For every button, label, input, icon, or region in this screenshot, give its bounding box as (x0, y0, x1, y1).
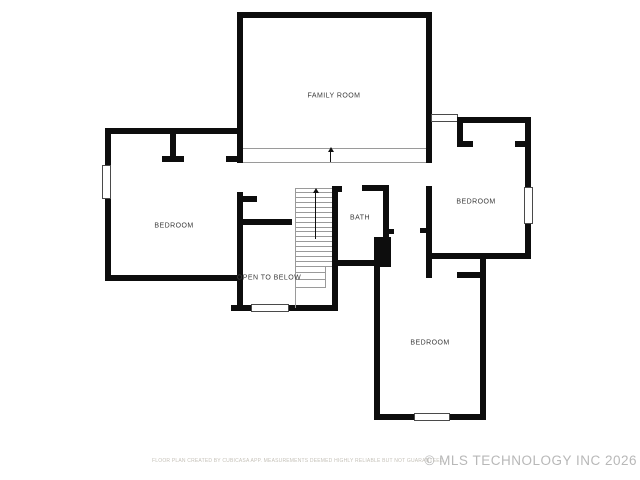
interior-wall (426, 253, 531, 259)
exterior-wall (105, 275, 237, 281)
wall-stub (332, 186, 342, 192)
interior-wall (332, 186, 338, 311)
room-label-open-to-below: OPEN TO BELOW (237, 275, 301, 282)
room-label-family-room: FAMILY ROOM (308, 93, 361, 100)
window (102, 165, 111, 199)
railing-window (251, 304, 289, 312)
floor-plan: FAMILY ROOM BEDROOM BATH BEDROOM OPEN TO… (0, 0, 640, 480)
closet-wall (170, 134, 176, 158)
room-label-bedroom-right: BEDROOM (456, 199, 495, 206)
step-line (243, 148, 426, 149)
room-label-bath: BATH (350, 215, 370, 222)
stair-tread (296, 241, 332, 242)
watermark: © MLS TECHNOLOGY INC 2026 (424, 453, 637, 468)
window (524, 187, 533, 224)
stair-tread (296, 256, 332, 257)
room-label-bedroom-left: BEDROOM (154, 223, 193, 230)
exterior-wall (237, 12, 432, 18)
closet-wall (162, 156, 184, 162)
stair-tread (296, 207, 332, 208)
wall-stub (237, 196, 257, 202)
stair-tread (296, 227, 332, 228)
wall-stub (389, 229, 394, 234)
exterior-wall (457, 117, 531, 123)
stair-tread (296, 236, 332, 237)
stair-edge (295, 188, 296, 308)
step-up-arrow-icon (330, 152, 331, 162)
stair-tread (296, 212, 332, 213)
closet-wall (457, 141, 473, 147)
footer-disclaimer: FLOOR PLAN CREATED BY CUBICASA APP. MEAS… (152, 458, 444, 464)
stair-tread (296, 251, 332, 252)
stair-tread (296, 272, 325, 273)
exterior-wall (237, 12, 243, 163)
closet-wall (226, 156, 240, 162)
room-label-bedroom-bottom: BEDROOM (410, 340, 449, 347)
exterior-wall (480, 257, 486, 420)
stair-tread (296, 222, 332, 223)
window (431, 114, 458, 122)
stair-tread (296, 261, 332, 262)
stairs (296, 188, 332, 308)
stair-tread (296, 202, 332, 203)
interior-wall (237, 219, 292, 225)
stair-tread (296, 246, 332, 247)
step-up-arrow-icon (328, 147, 334, 152)
interior-wall (426, 186, 432, 278)
exterior-wall (426, 12, 432, 163)
stairs-up-arrow-icon (313, 188, 319, 193)
window (414, 413, 450, 421)
interior-wall (332, 260, 376, 266)
exterior-wall (105, 128, 111, 281)
interior-wall (237, 192, 243, 311)
stair-tread (296, 231, 332, 232)
stair-tread (296, 217, 332, 218)
step-line (243, 162, 426, 163)
stairs-up-arrow-icon (315, 193, 316, 239)
wall-stub (420, 228, 426, 233)
stair-edge (296, 287, 326, 288)
stair-tread (296, 197, 332, 198)
stair-edge (325, 266, 326, 288)
exterior-wall (374, 262, 380, 420)
stair-tread (296, 266, 332, 267)
